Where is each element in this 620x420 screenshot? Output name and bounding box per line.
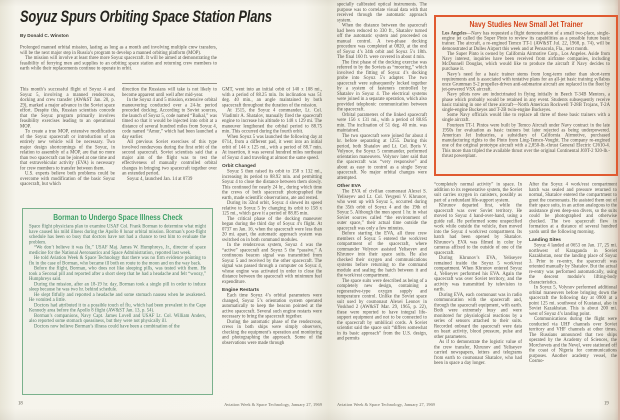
body-paragraph: The two spacecraft were joined for about… — [337, 133, 427, 180]
navy-trainer-box: Navy Studies New Small Jet Trainer Los A… — [434, 15, 618, 176]
body-paragraph: Orbital parameters of the linked spacecr… — [337, 112, 427, 133]
body-paragraph: In Soyuz 5, Volynov performed additional… — [529, 285, 617, 317]
right-page-column-3: After the Soyuz 4 work/rest compartment … — [529, 182, 617, 402]
right-page-column-2: “completely normal activity” in space. I… — [434, 182, 522, 402]
body-paragraph: “completely normal activity” in space. I… — [434, 182, 522, 203]
body-paragraph: Fourteen TT-1 Pintos were built by Temco… — [442, 123, 610, 159]
body-paragraph: Before starting the EVA, all three crew … — [337, 231, 427, 278]
navy-box-lead-paragraph: Los Angeles—Navy has requested a flight … — [442, 31, 610, 51]
body-paragraph: The EVA of civilian cosmonaut Alexei S. … — [337, 189, 427, 231]
body-paragraph: specially calibrated optical instruments… — [337, 2, 427, 23]
body-paragraph: Communications during the flight were co… — [529, 317, 617, 364]
right-page-column-1: specially calibrated optical instruments… — [337, 2, 427, 401]
body-paragraph: During Khrunov’s EVA, Yeliseyev remained… — [434, 256, 522, 293]
page-right: specially calibrated optical instruments… — [0, 0, 620, 420]
body-paragraph: Navy pilots now are indoctrinated in fly… — [442, 92, 610, 112]
navy-box-lead-text: —Navy has requested a flight demonstrati… — [442, 31, 610, 51]
body-paragraph: Soyuz 4 landed at 0653 on Jan. 17, 25 mi… — [529, 243, 617, 285]
body-paragraph: The first phase of the docking exercise … — [337, 60, 427, 113]
body-paragraph: The space suits were described as being … — [337, 278, 427, 341]
section-subhead: Other EVA — [337, 183, 427, 189]
body-paragraph: During EVA, each cosmonaut was in radio … — [434, 292, 522, 339]
body-paragraph: As if to demonstrate the logistic value … — [434, 340, 522, 366]
body-paragraph: After the Soyuz 4 work/rest compartment … — [529, 182, 617, 235]
body-paragraph: Some Navy officials would like to replac… — [442, 113, 610, 123]
navy-box-title: Navy Studies New Small Jet Trainer — [442, 20, 610, 29]
right-page-folio: Aviation Week & Space Technology, Januar… — [337, 402, 497, 412]
body-paragraph: The Super Pinto is owned by California A… — [442, 51, 610, 71]
magazine-spread: Soyuz Spurs Orbiting Space Station Plans… — [0, 0, 620, 420]
body-paragraph: Khrunov departed first, while the spacec… — [434, 203, 522, 256]
body-paragraph: When the distance between the spacecraft… — [337, 23, 427, 60]
body-paragraph: Navy’s need for a basic trainer stems fr… — [442, 72, 610, 92]
section-subhead: Landing Sites — [529, 237, 617, 243]
